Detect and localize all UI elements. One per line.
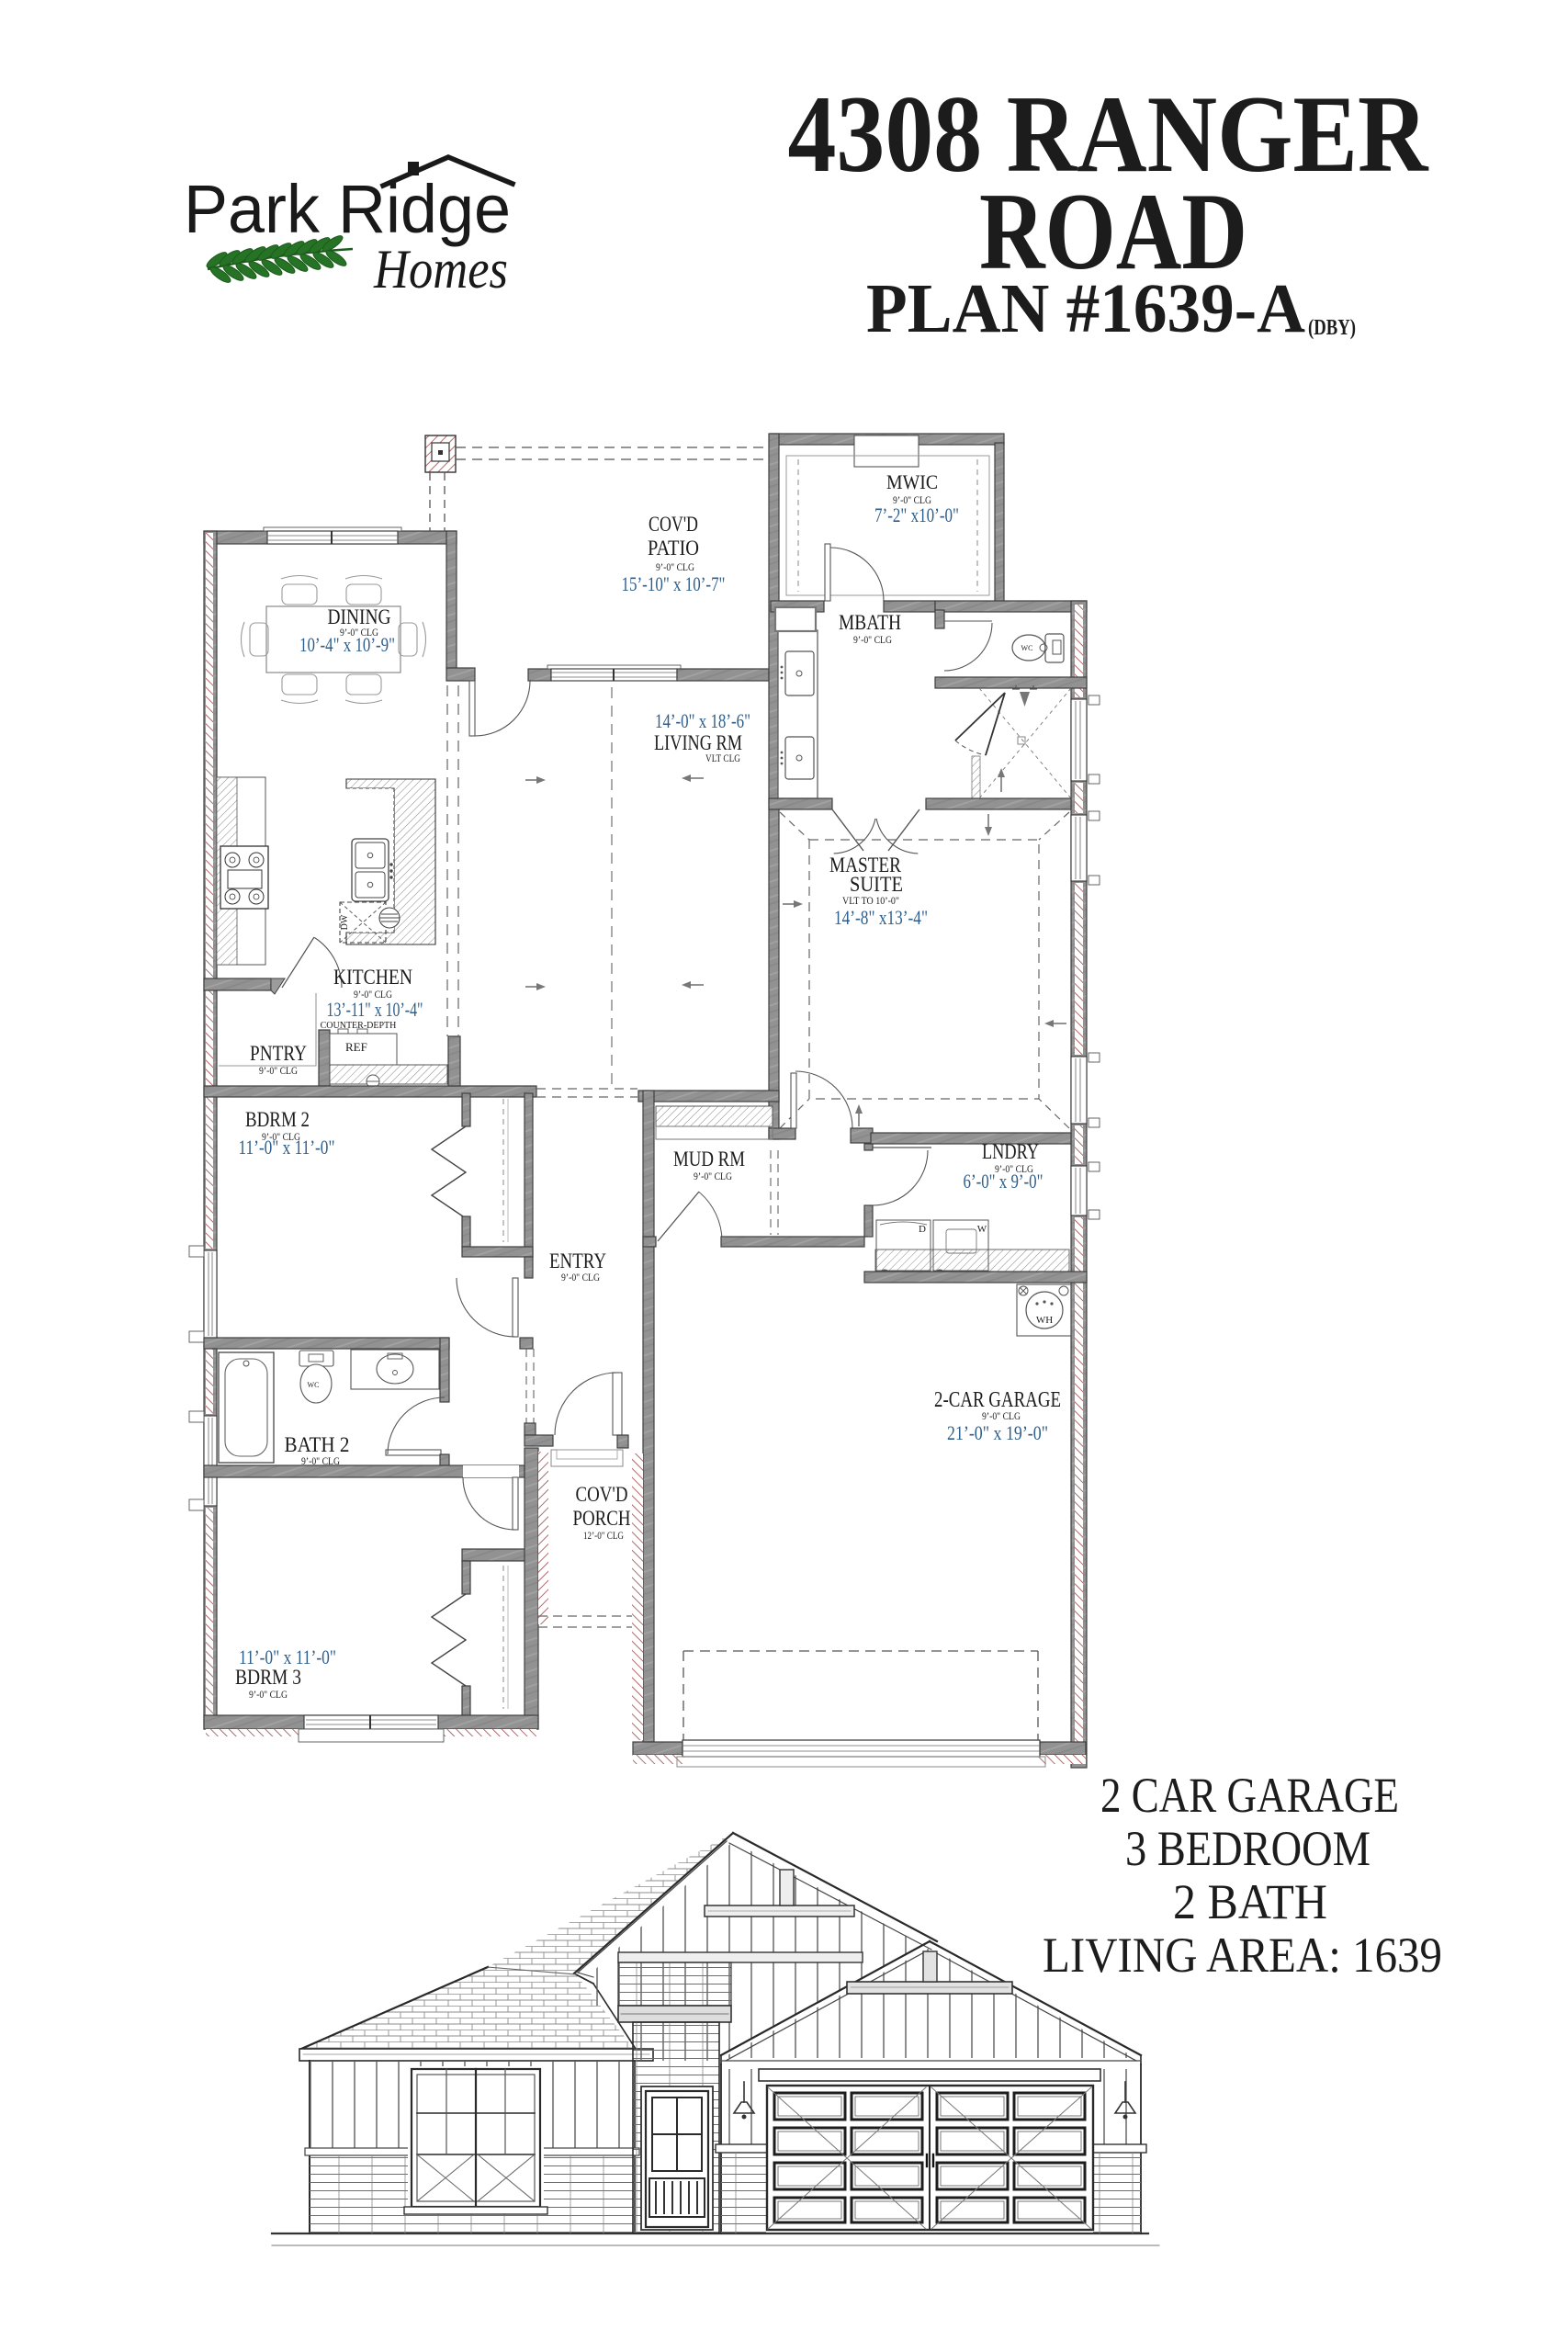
svg-text:13’-11" x 10’-4": 13’-11" x 10’-4" xyxy=(327,998,423,1021)
svg-text:9’-0" CLG: 9’-0" CLG xyxy=(249,1688,288,1701)
svg-text:9’-0" CLG: 9’-0" CLG xyxy=(656,560,694,573)
svg-text:Homes: Homes xyxy=(373,239,508,300)
svg-text:WC: WC xyxy=(1021,644,1033,652)
svg-text:7’-2" x10’-0": 7’-2" x10’-0" xyxy=(874,503,959,526)
svg-text:COV'D: COV'D xyxy=(576,1483,628,1506)
svg-text:D: D xyxy=(919,1224,926,1235)
svg-text:VLT CLG: VLT CLG xyxy=(705,752,740,764)
svg-text:PLAN #1639-A: PLAN #1639-A xyxy=(866,270,1305,347)
svg-text:14’-8" x13’-4": 14’-8" x13’-4" xyxy=(834,906,928,929)
svg-text:21’-0" x 19’-0": 21’-0" x 19’-0" xyxy=(947,1421,1048,1444)
svg-text:9’-0" CLG: 9’-0" CLG xyxy=(259,1064,298,1077)
svg-text:10’-4" x 10’-9": 10’-4" x 10’-9" xyxy=(299,633,395,656)
svg-text:9’-0" CLG: 9’-0" CLG xyxy=(561,1271,600,1283)
svg-text:BATH 2: BATH 2 xyxy=(285,1433,350,1456)
svg-text:14’-0" x 18’-6": 14’-0" x 18’-6" xyxy=(655,709,750,732)
svg-text:MUD RM: MUD RM xyxy=(673,1148,745,1170)
svg-text:DW: DW xyxy=(340,914,350,930)
svg-text:PORCH: PORCH xyxy=(573,1507,631,1530)
svg-text:BDRM 3: BDRM 3 xyxy=(235,1666,301,1689)
svg-text:VLT TO 10’-0": VLT TO 10’-0" xyxy=(842,894,899,907)
svg-text:9’-0" CLG: 9’-0" CLG xyxy=(853,633,892,646)
svg-text:Park Ridge: Park Ridge xyxy=(184,171,511,247)
svg-text:9’-0" CLG: 9’-0" CLG xyxy=(694,1170,732,1182)
svg-text:WC: WC xyxy=(308,1381,320,1389)
svg-text:9’-0" CLG: 9’-0" CLG xyxy=(982,1409,1021,1422)
svg-text:11’-0" x 11’-0": 11’-0" x 11’-0" xyxy=(239,1136,335,1159)
svg-text:SUITE: SUITE xyxy=(850,873,903,896)
svg-text:MBATH: MBATH xyxy=(839,611,901,634)
svg-text:6’-0" x 9’-0": 6’-0" x 9’-0" xyxy=(964,1170,1043,1193)
svg-text:2 BATH: 2 BATH xyxy=(1173,1874,1327,1929)
svg-text:COUNTER-DEPTH: COUNTER-DEPTH xyxy=(321,1021,397,1031)
svg-text:REF: REF xyxy=(345,1040,367,1054)
svg-text:15’-10" x 10’-7": 15’-10" x 10’-7" xyxy=(622,572,726,595)
svg-text:BDRM 2: BDRM 2 xyxy=(245,1108,310,1131)
svg-text:3 BEDROOM: 3 BEDROOM xyxy=(1125,1821,1371,1876)
svg-text:WH: WH xyxy=(1036,1315,1053,1326)
svg-text:2 CAR GARAGE: 2 CAR GARAGE xyxy=(1100,1768,1399,1823)
svg-text:9’-0" CLG: 9’-0" CLG xyxy=(301,1454,340,1467)
svg-text:LIVING AREA: 1639: LIVING AREA: 1639 xyxy=(1043,1928,1442,1983)
svg-text:COV'D: COV'D xyxy=(649,513,698,536)
svg-text:(DBY): (DBY) xyxy=(1308,316,1356,340)
svg-text:KITCHEN: KITCHEN xyxy=(333,966,412,989)
svg-text:ENTRY: ENTRY xyxy=(549,1249,606,1272)
svg-text:MWIC: MWIC xyxy=(886,470,938,493)
svg-text:LNDRY: LNDRY xyxy=(982,1140,1039,1163)
svg-text:12’-0" CLG: 12’-0" CLG xyxy=(583,1529,624,1542)
svg-text:W: W xyxy=(977,1224,987,1235)
svg-text:PNTRY: PNTRY xyxy=(250,1042,307,1065)
svg-text:PATIO: PATIO xyxy=(648,537,699,560)
